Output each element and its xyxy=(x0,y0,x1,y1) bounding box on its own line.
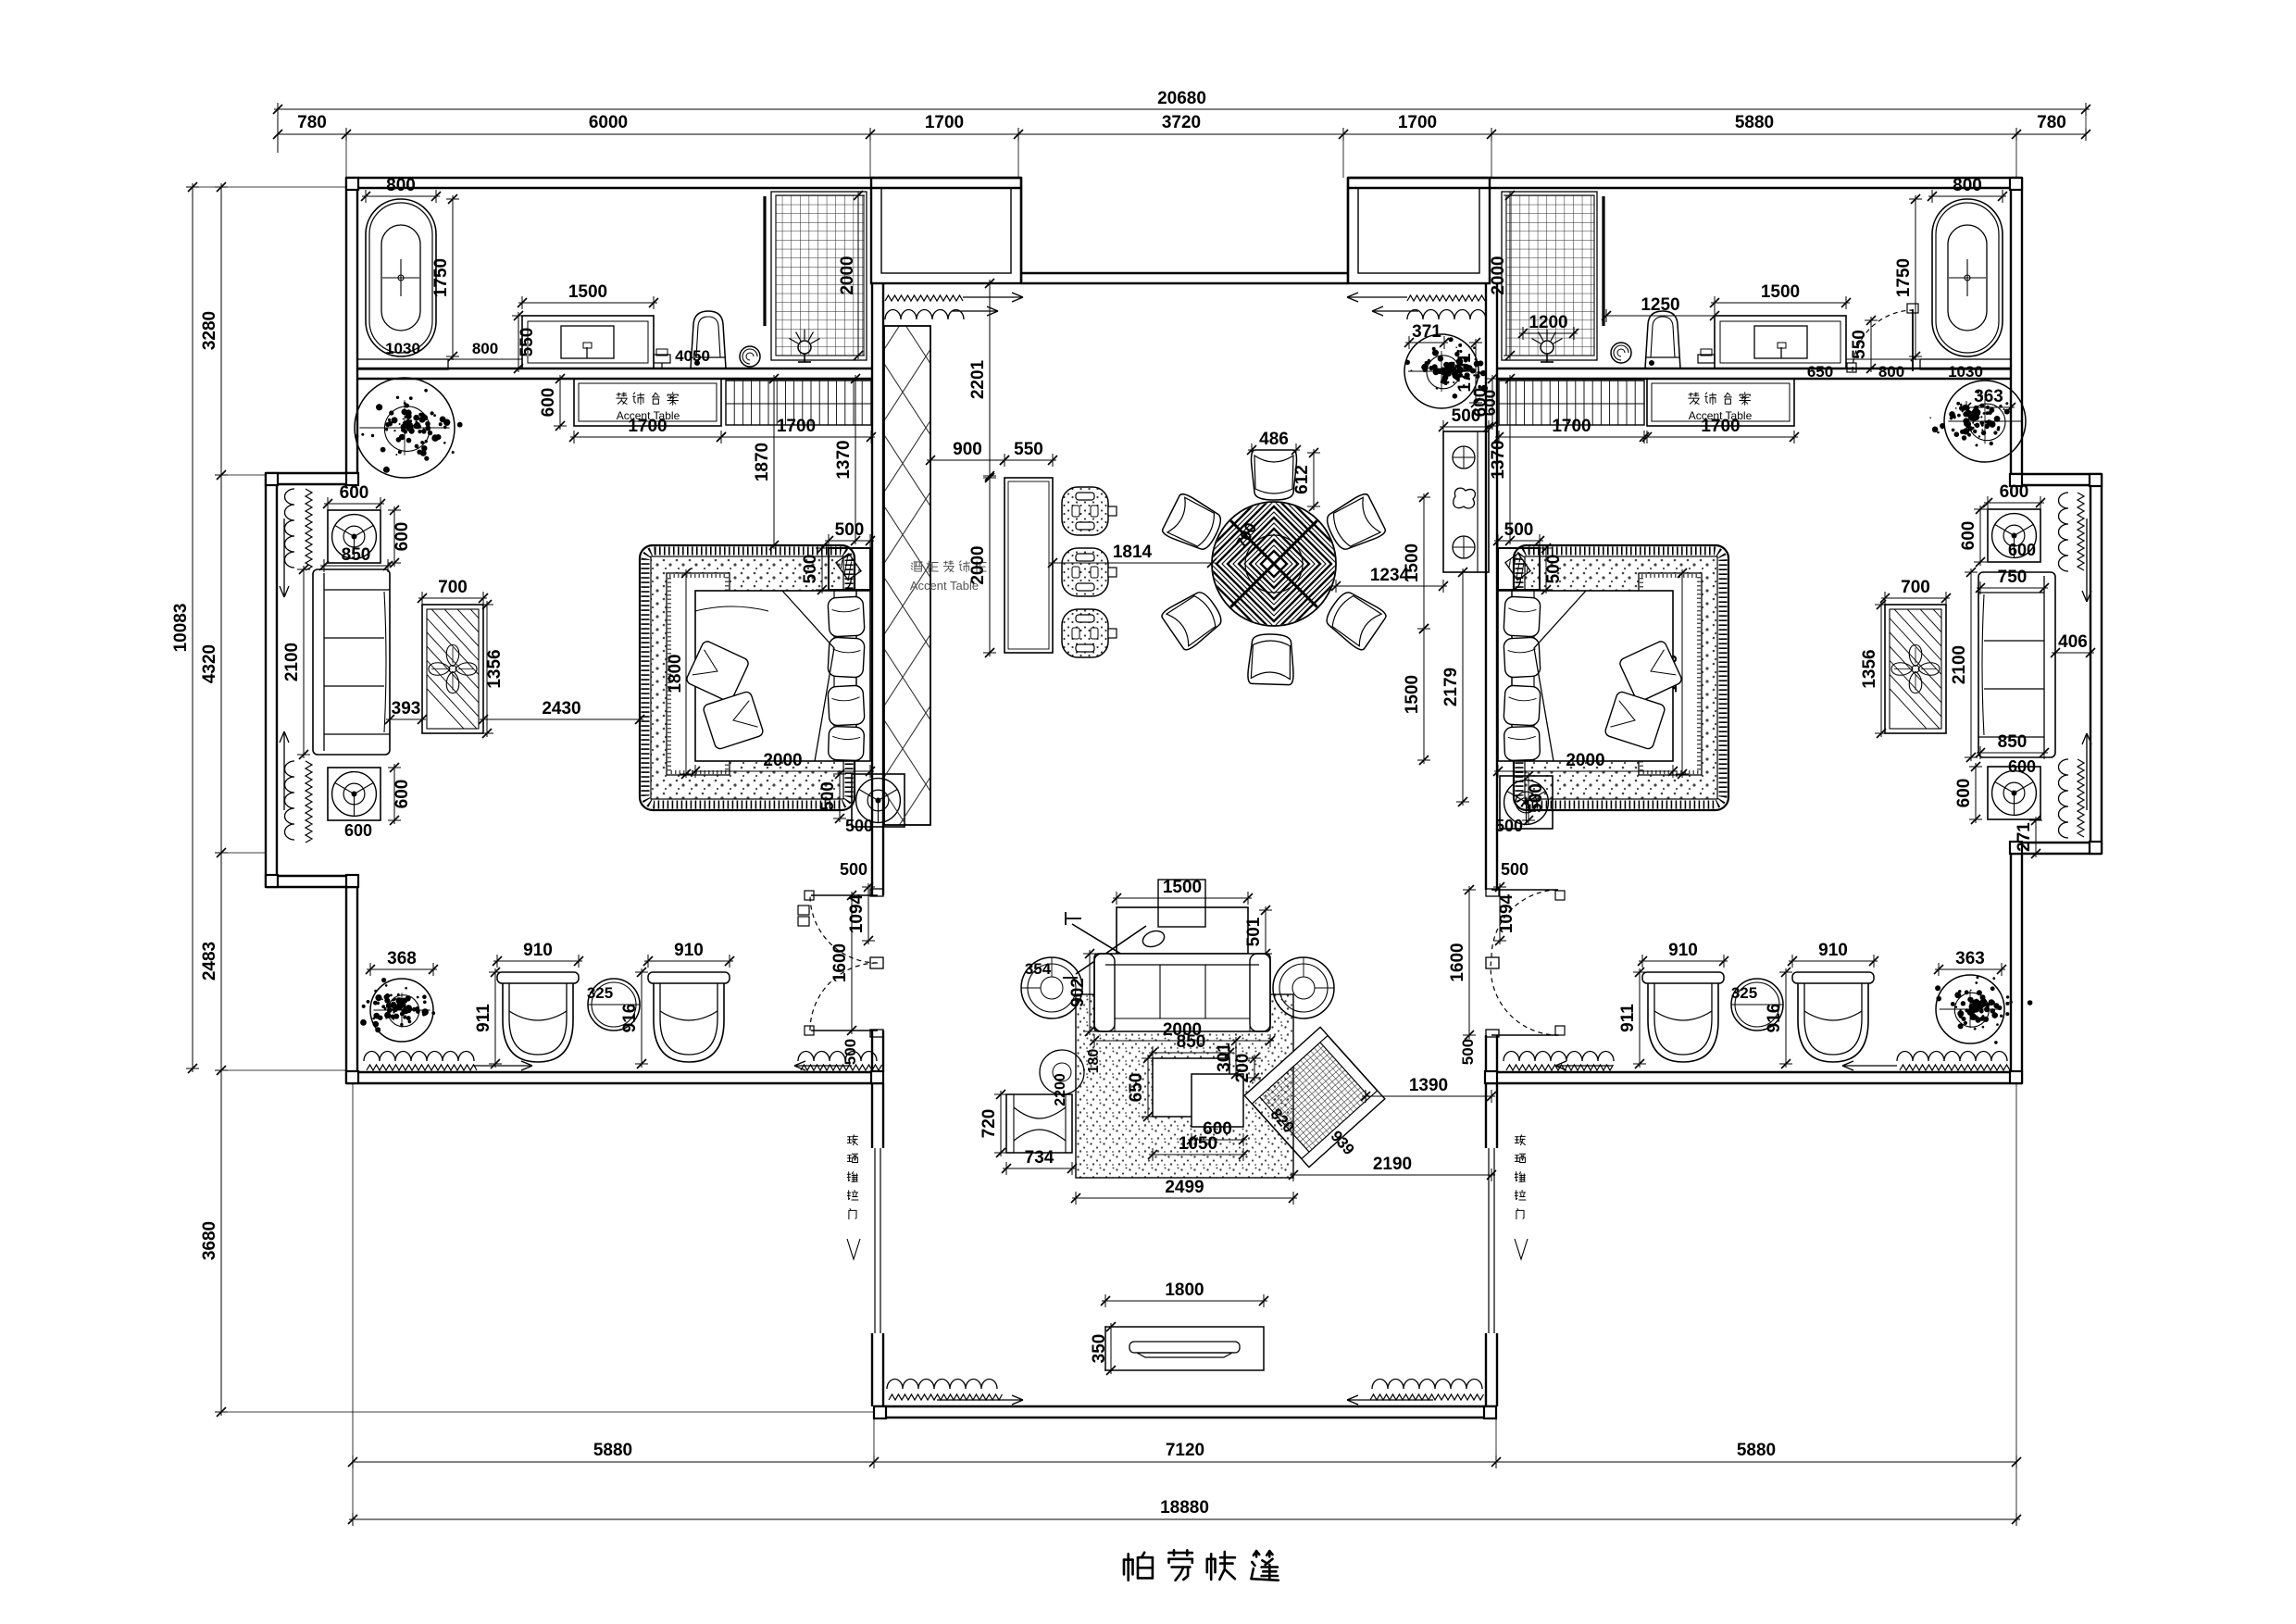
svg-text:700: 700 xyxy=(1901,578,1930,597)
svg-text:1750: 1750 xyxy=(431,258,451,297)
svg-text:2483: 2483 xyxy=(200,942,219,981)
svg-text:7120: 7120 xyxy=(1166,1441,1204,1460)
svg-text:600: 600 xyxy=(2008,541,2036,559)
svg-text:600: 600 xyxy=(393,780,412,809)
svg-text:550: 550 xyxy=(1850,330,1869,359)
svg-text:800: 800 xyxy=(386,176,416,195)
svg-text:500: 500 xyxy=(1501,860,1529,879)
svg-text:500: 500 xyxy=(1495,817,1523,835)
svg-text:5880: 5880 xyxy=(1735,113,1774,132)
svg-text:2000: 2000 xyxy=(1566,751,1604,770)
svg-text:910: 910 xyxy=(674,941,704,960)
svg-text:500: 500 xyxy=(842,1039,859,1065)
svg-text:750: 750 xyxy=(1998,568,2028,587)
svg-text:780: 780 xyxy=(297,113,327,132)
svg-text:2190: 2190 xyxy=(1373,1155,1412,1174)
svg-text:1094: 1094 xyxy=(1497,893,1516,933)
svg-text:1500: 1500 xyxy=(1761,282,1800,302)
svg-text:1700: 1700 xyxy=(1701,417,1740,436)
svg-text:18880: 18880 xyxy=(1160,1498,1209,1518)
svg-text:350: 350 xyxy=(1090,1334,1109,1364)
svg-text:800: 800 xyxy=(1878,363,1904,381)
svg-text:500: 500 xyxy=(801,555,820,584)
svg-text:1600: 1600 xyxy=(830,943,850,982)
svg-text:1814: 1814 xyxy=(1113,543,1153,562)
svg-text:20680: 20680 xyxy=(1157,89,1206,108)
svg-text:500: 500 xyxy=(1544,555,1564,584)
svg-text:700: 700 xyxy=(438,578,468,597)
svg-text:406: 406 xyxy=(2058,632,2088,652)
svg-text:1094: 1094 xyxy=(847,893,867,933)
svg-text:1700: 1700 xyxy=(1398,113,1437,132)
svg-text:850: 850 xyxy=(1998,732,2028,752)
svg-text:1500: 1500 xyxy=(568,282,607,302)
svg-text:600: 600 xyxy=(1954,779,1974,808)
svg-text:1800: 1800 xyxy=(1165,1280,1204,1300)
svg-text:501: 501 xyxy=(1244,917,1264,946)
svg-text:500: 500 xyxy=(845,817,873,835)
svg-text:325: 325 xyxy=(587,984,613,1002)
svg-text:3280: 3280 xyxy=(200,311,219,350)
svg-text:271: 271 xyxy=(2015,822,2034,852)
svg-text:10083: 10083 xyxy=(171,604,191,653)
svg-text:200: 200 xyxy=(1233,1054,1253,1083)
svg-text:910: 910 xyxy=(1818,941,1848,960)
svg-text:780: 780 xyxy=(2037,113,2066,132)
svg-text:600: 600 xyxy=(2008,757,2036,776)
svg-text:301: 301 xyxy=(1215,1043,1234,1072)
svg-text:600: 600 xyxy=(539,388,558,418)
svg-text:500: 500 xyxy=(818,781,838,811)
svg-text:393: 393 xyxy=(392,699,421,718)
svg-text:2100: 2100 xyxy=(282,643,302,681)
svg-text:1200: 1200 xyxy=(1529,313,1567,332)
svg-text:1250: 1250 xyxy=(1641,295,1679,315)
svg-text:600: 600 xyxy=(2000,482,2029,502)
svg-text:1700: 1700 xyxy=(777,417,816,436)
svg-text:911: 911 xyxy=(474,1004,493,1032)
svg-text:2000: 2000 xyxy=(968,545,988,584)
svg-text:500: 500 xyxy=(1504,520,1534,540)
svg-text:2100: 2100 xyxy=(1950,645,1969,684)
svg-text:500: 500 xyxy=(840,860,867,879)
svg-text:1390: 1390 xyxy=(1409,1076,1448,1095)
svg-text:6000: 6000 xyxy=(589,113,628,132)
svg-text:2000: 2000 xyxy=(763,751,802,770)
svg-text:2499: 2499 xyxy=(1165,1178,1204,1197)
svg-text:720: 720 xyxy=(980,1109,999,1139)
svg-text:600: 600 xyxy=(340,483,369,503)
svg-text:1370: 1370 xyxy=(1489,440,1508,479)
svg-text:2000: 2000 xyxy=(838,256,857,294)
svg-text:2000: 2000 xyxy=(1489,256,1508,294)
svg-text:1500: 1500 xyxy=(1163,878,1202,897)
svg-text:500: 500 xyxy=(1527,783,1546,813)
svg-text:1030: 1030 xyxy=(385,340,420,357)
svg-text:2179: 2179 xyxy=(1441,668,1461,706)
svg-text:910: 910 xyxy=(523,941,553,960)
svg-text:734: 734 xyxy=(1025,1148,1054,1168)
svg-text:4320: 4320 xyxy=(200,644,219,683)
svg-text:2430: 2430 xyxy=(542,699,580,718)
svg-text:1356: 1356 xyxy=(485,649,505,688)
svg-text:911: 911 xyxy=(1618,1004,1638,1032)
svg-text:2000: 2000 xyxy=(1163,1020,1202,1040)
svg-text:486: 486 xyxy=(1259,430,1289,449)
svg-text:600: 600 xyxy=(1471,388,1491,418)
svg-text:1356: 1356 xyxy=(1860,649,1879,688)
svg-text:1870: 1870 xyxy=(753,443,772,481)
svg-text:1370: 1370 xyxy=(834,440,854,479)
svg-text:1800: 1800 xyxy=(666,654,685,693)
svg-text:3720: 3720 xyxy=(1162,113,1201,132)
svg-text:1701: 1701 xyxy=(1455,353,1475,393)
svg-text:550: 550 xyxy=(518,328,537,357)
svg-text:600: 600 xyxy=(344,821,372,840)
svg-text:850: 850 xyxy=(342,545,371,565)
svg-text:354: 354 xyxy=(1025,960,1052,978)
svg-text:371: 371 xyxy=(1412,322,1441,342)
svg-text:1700: 1700 xyxy=(1552,417,1591,436)
svg-text:5880: 5880 xyxy=(1737,1441,1776,1460)
svg-text:1700: 1700 xyxy=(628,417,667,436)
svg-text:368: 368 xyxy=(387,949,417,968)
svg-text:1050: 1050 xyxy=(1179,1134,1217,1154)
svg-text:363: 363 xyxy=(1955,949,1985,968)
svg-text:612: 612 xyxy=(1292,465,1312,494)
svg-text:650: 650 xyxy=(1807,363,1833,381)
svg-text:600: 600 xyxy=(393,522,412,552)
svg-text:650: 650 xyxy=(1127,1073,1146,1103)
svg-text:900: 900 xyxy=(953,440,982,459)
svg-text:180: 180 xyxy=(1086,1049,1102,1074)
svg-text:363: 363 xyxy=(1974,387,2003,406)
svg-text:1500: 1500 xyxy=(1403,543,1422,582)
svg-text:800: 800 xyxy=(472,340,498,357)
svg-text:500: 500 xyxy=(1459,1039,1477,1065)
svg-text:902: 902 xyxy=(1068,978,1088,1007)
svg-text:800: 800 xyxy=(1953,176,1982,195)
svg-text:600: 600 xyxy=(1959,521,1978,551)
svg-text:1700: 1700 xyxy=(925,113,964,132)
svg-text:4050: 4050 xyxy=(675,347,710,365)
svg-text:1500: 1500 xyxy=(1403,675,1422,714)
svg-text:3680: 3680 xyxy=(200,1221,219,1260)
svg-text:550: 550 xyxy=(1014,440,1043,459)
svg-text:1600: 1600 xyxy=(1448,943,1467,981)
svg-text:1750: 1750 xyxy=(1894,258,1914,297)
svg-text:325: 325 xyxy=(1731,984,1757,1002)
svg-text:910: 910 xyxy=(1668,941,1698,960)
svg-text:5880: 5880 xyxy=(593,1441,632,1460)
svg-text:1030: 1030 xyxy=(1948,363,1983,381)
svg-text:2201: 2201 xyxy=(968,359,988,399)
